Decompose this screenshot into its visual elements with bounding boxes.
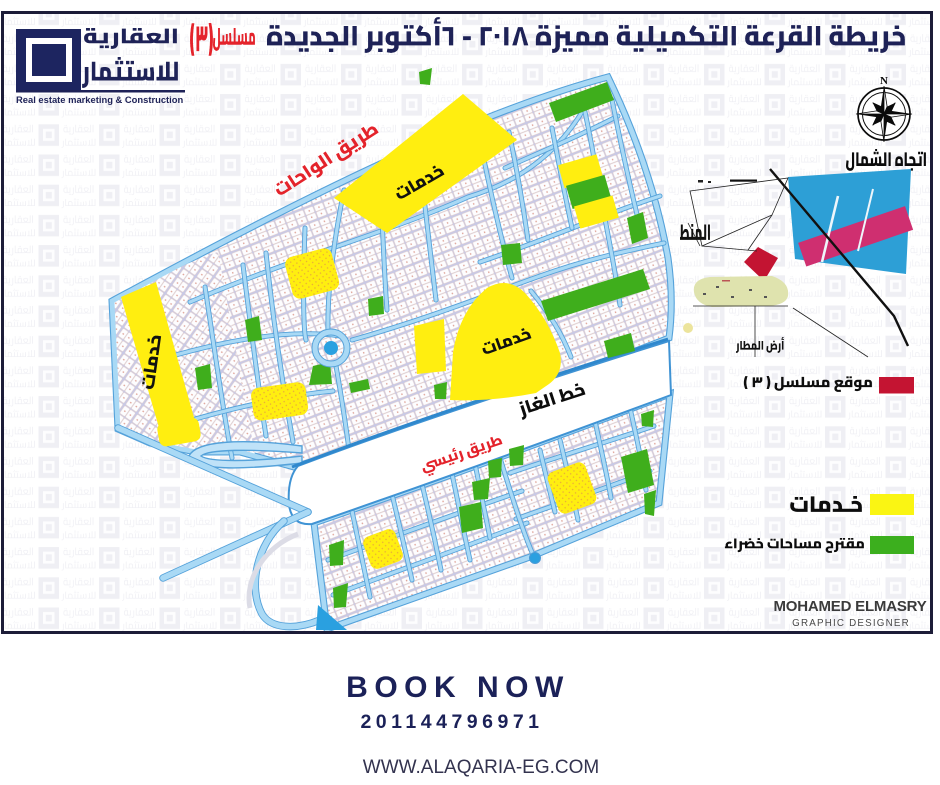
svg-text:201144796971: 201144796971	[360, 711, 543, 733]
svg-text:Real estate marketing & Constr: Real estate marketing & Construction	[16, 94, 183, 105]
svg-text:WWW.ALAQARIA-EG.COM: WWW.ALAQARIA-EG.COM	[363, 757, 599, 778]
svg-text:BOOK NOW: BOOK NOW	[346, 671, 570, 704]
svg-text:MOHAMED ELMASRY: MOHAMED ELMASRY	[773, 598, 926, 615]
svg-text:N: N	[880, 75, 888, 87]
svg-text:GRAPHIC DESIGNER: GRAPHIC DESIGNER	[792, 618, 910, 629]
